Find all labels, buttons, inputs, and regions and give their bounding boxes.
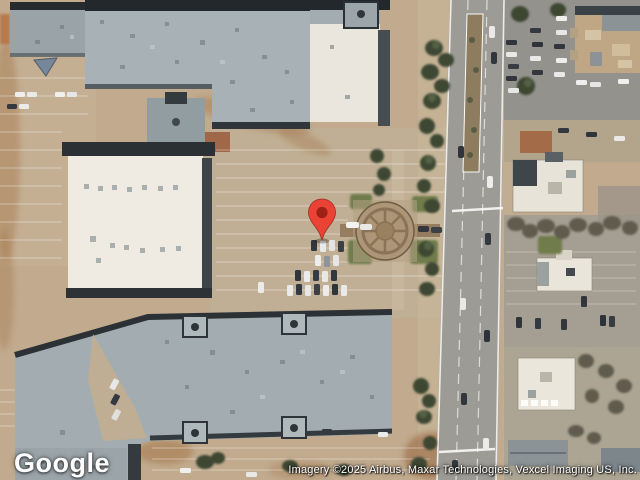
map-viewport[interactable]: Google Imagery ©2025 Airbus, Maxar Techn… xyxy=(0,0,640,480)
building-roof-white xyxy=(310,24,380,122)
imagery-attribution: Imagery ©2025 Airbus, Maxar Technologies… xyxy=(288,464,637,476)
building-roof-white xyxy=(68,156,203,292)
pin-inner-dot xyxy=(316,207,327,218)
google-logo[interactable]: Google xyxy=(14,448,110,479)
plaza-roundabout xyxy=(353,200,417,262)
location-pin-icon[interactable] xyxy=(307,198,337,244)
building-roof xyxy=(10,6,85,56)
pin-body xyxy=(309,199,336,240)
